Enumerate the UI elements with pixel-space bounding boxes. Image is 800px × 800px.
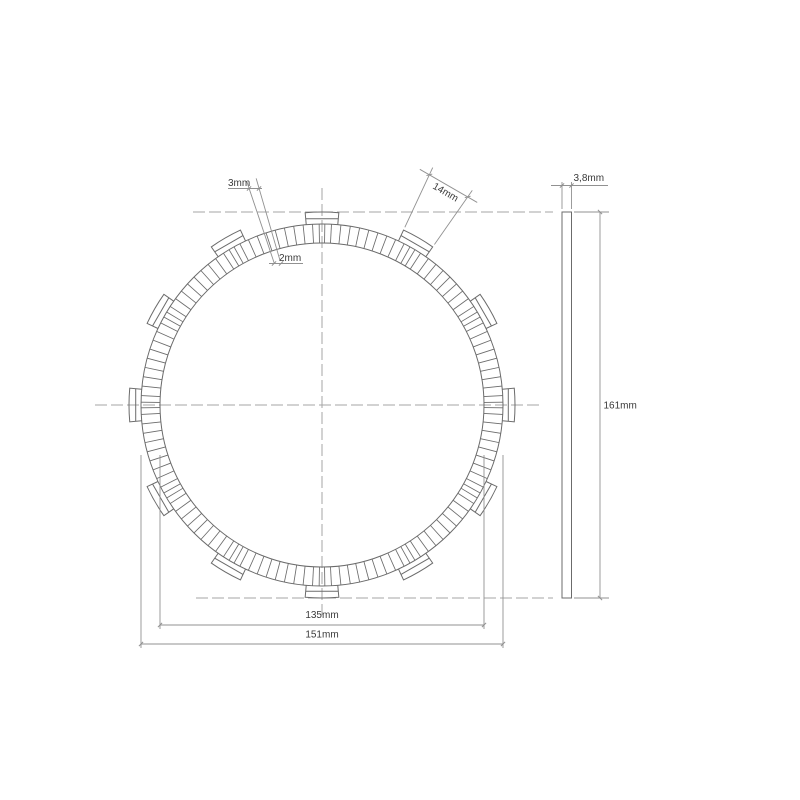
side-view-plate xyxy=(562,212,572,598)
friction-segment-line xyxy=(147,358,165,363)
friction-segment-line xyxy=(145,439,164,443)
dim-thickness-label: 3,8mm xyxy=(574,173,605,184)
friction-segment-line xyxy=(470,331,487,339)
friction-segment-line xyxy=(380,556,387,574)
friction-segment-line xyxy=(372,233,378,251)
friction-segment-line xyxy=(294,565,297,584)
friction-segment-line xyxy=(145,367,164,371)
friction-segment-line xyxy=(347,565,350,584)
friction-segment-line xyxy=(339,225,341,244)
friction-segment-line xyxy=(248,553,256,570)
friction-segment-line xyxy=(201,525,214,539)
friction-segment-line xyxy=(313,224,314,243)
friction-segment-line xyxy=(396,549,405,566)
friction-segment-line xyxy=(150,455,168,461)
friction-segment-line xyxy=(141,396,160,397)
friction-segment-line xyxy=(372,559,378,577)
dim-groove-outer-label: 3mm xyxy=(228,178,250,189)
friction-segment-line xyxy=(153,340,171,347)
friction-segment-line xyxy=(240,244,249,261)
friction-segment-line xyxy=(484,413,503,414)
friction-segment-line xyxy=(482,430,501,433)
friction-segment-line xyxy=(142,422,161,424)
friction-segment-line xyxy=(143,377,162,380)
friction-segment-line xyxy=(478,447,496,452)
friction-segment-line xyxy=(388,553,396,570)
dim-outer-dia-label: 151mm xyxy=(305,630,338,641)
friction-segment-line xyxy=(303,566,305,585)
friction-segment-line xyxy=(187,513,201,526)
friction-segment-line xyxy=(437,520,450,533)
friction-segment-line xyxy=(448,291,463,303)
friction-segment-line xyxy=(275,561,280,579)
friction-segment-line xyxy=(330,224,331,243)
friction-segment-line xyxy=(330,567,331,586)
friction-segment-line xyxy=(313,567,314,586)
friction-segment-line xyxy=(161,479,178,488)
friction-segment-line xyxy=(181,507,196,519)
friction-segment-line xyxy=(157,331,174,339)
friction-segment-line xyxy=(473,463,491,470)
friction-segment-line xyxy=(483,422,502,424)
friction-segment-line xyxy=(442,513,456,526)
dim-overall-height-label: 161mm xyxy=(604,401,637,412)
friction-segment-line xyxy=(424,531,436,546)
friction-segment-line xyxy=(453,299,468,310)
friction-segment-line xyxy=(176,500,191,511)
friction-segment-line xyxy=(442,284,456,297)
friction-segment-line xyxy=(257,236,264,254)
friction-segment-line xyxy=(480,439,499,443)
friction-segment-line xyxy=(356,563,360,582)
friction-segment-line xyxy=(417,259,428,274)
dim-inner-dia-label: 135mm xyxy=(305,610,338,621)
friction-segment-line xyxy=(347,226,350,245)
friction-segment-line xyxy=(356,228,360,247)
drawing-page: 3mm2mm14mm3,8mm161mm135mm151mm xyxy=(0,0,800,800)
friction-segment-line xyxy=(388,240,396,257)
friction-segment-line xyxy=(473,340,491,347)
friction-segment-line xyxy=(430,270,443,284)
friction-segment-line xyxy=(476,349,494,355)
friction-segment-line xyxy=(466,323,483,332)
friction-segment-line xyxy=(266,559,272,577)
friction-segment-line xyxy=(294,226,297,245)
friction-segment-line xyxy=(153,463,171,470)
friction-segment-line xyxy=(216,536,227,551)
friction-segment-line xyxy=(396,244,405,261)
friction-segment-line xyxy=(476,455,494,461)
dim-tab-width-label: 14mm xyxy=(430,181,460,204)
friction-segment-line xyxy=(484,396,503,397)
dim-tab-width-ext xyxy=(405,168,433,228)
friction-segment-line xyxy=(284,228,288,247)
friction-segment-line xyxy=(141,413,160,414)
friction-segment-line xyxy=(143,430,162,433)
friction-segment-line xyxy=(430,525,443,539)
friction-segment-line xyxy=(478,358,496,363)
friction-segment-line xyxy=(157,471,174,479)
dim-groove-inner-label: 2mm xyxy=(279,253,301,264)
clutch-plate-technical-drawing: 3mm2mm14mm3,8mm161mm135mm151mm xyxy=(0,0,800,800)
friction-segment-line xyxy=(194,277,207,290)
friction-segment-line xyxy=(142,386,161,388)
friction-segment-line xyxy=(208,264,220,279)
friction-segment-line xyxy=(150,349,168,355)
friction-segment-line xyxy=(364,561,369,579)
friction-segment-line xyxy=(437,277,450,290)
friction-segment-line xyxy=(480,367,499,371)
friction-segment-line xyxy=(303,225,305,244)
friction-segment-line xyxy=(161,323,178,332)
friction-segment-line xyxy=(482,377,501,380)
friction-segment-line xyxy=(181,291,196,303)
friction-segment-line xyxy=(248,240,256,257)
friction-segment-line xyxy=(470,471,487,479)
friction-segment-line xyxy=(466,479,483,488)
friction-segment-line xyxy=(201,270,214,284)
friction-segment-line xyxy=(448,507,463,519)
friction-segment-line xyxy=(176,299,191,310)
friction-segment-line xyxy=(364,230,369,248)
friction-segment-line xyxy=(216,259,227,274)
friction-segment-line xyxy=(240,549,249,566)
friction-segment-line xyxy=(284,563,288,582)
friction-segment-line xyxy=(339,566,341,585)
friction-segment-line xyxy=(424,264,436,279)
friction-segment-line xyxy=(194,520,207,533)
friction-segment-line xyxy=(417,536,428,551)
friction-segment-line xyxy=(147,447,165,452)
friction-segment-line xyxy=(208,531,220,546)
friction-segment-line xyxy=(187,284,201,297)
friction-segment-line xyxy=(380,236,387,254)
friction-segment-line xyxy=(483,386,502,388)
friction-segment-line xyxy=(257,556,264,574)
friction-segment-line xyxy=(453,500,468,511)
